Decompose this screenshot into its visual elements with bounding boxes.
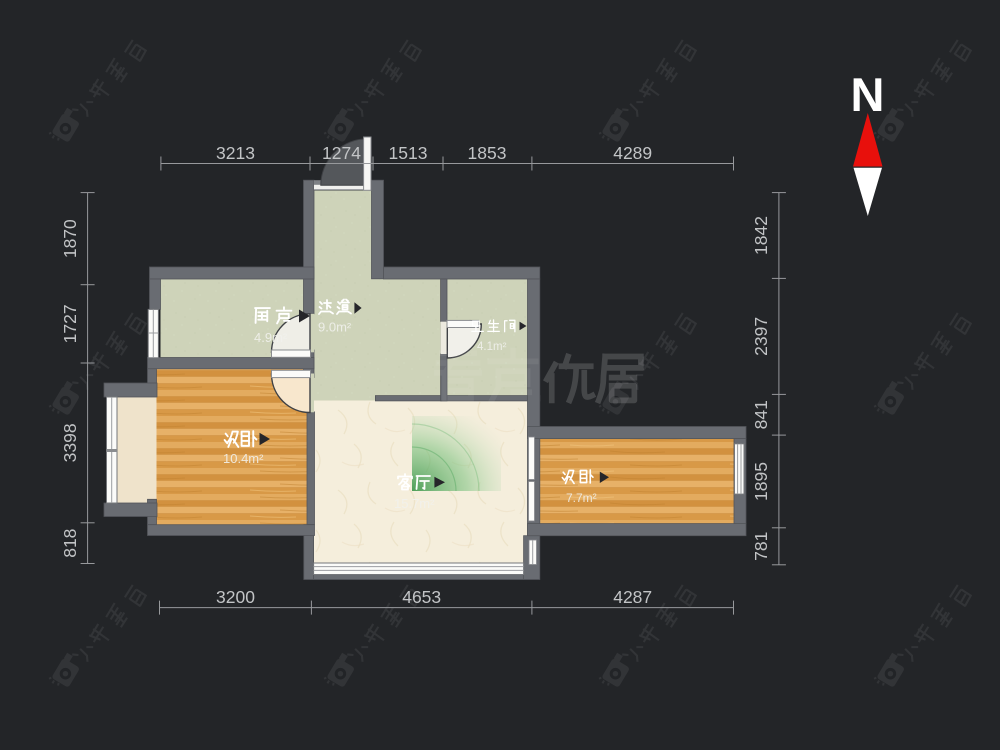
svg-text:1727: 1727 xyxy=(60,304,80,343)
svg-text:841: 841 xyxy=(751,400,771,429)
svg-text:4287: 4287 xyxy=(613,587,652,607)
svg-text:1853: 1853 xyxy=(468,143,507,163)
svg-text:3213: 3213 xyxy=(216,143,255,163)
svg-text:4289: 4289 xyxy=(613,143,652,163)
svg-text:4.9m²: 4.9m² xyxy=(254,330,288,345)
svg-text:3398: 3398 xyxy=(60,423,80,462)
svg-text:15.7m²: 15.7m² xyxy=(394,496,435,511)
svg-text:3200: 3200 xyxy=(216,587,255,607)
svg-text:10.4m²: 10.4m² xyxy=(223,451,264,466)
svg-text:1513: 1513 xyxy=(389,143,428,163)
svg-text:4653: 4653 xyxy=(402,587,441,607)
svg-text:1842: 1842 xyxy=(751,216,771,255)
svg-text:2397: 2397 xyxy=(751,317,771,356)
svg-text:N: N xyxy=(851,68,885,121)
svg-text:781: 781 xyxy=(751,532,771,561)
svg-text:1870: 1870 xyxy=(60,219,80,258)
svg-text:4.1m²: 4.1m² xyxy=(477,341,507,353)
svg-text:818: 818 xyxy=(60,529,80,558)
svg-text:1274: 1274 xyxy=(322,143,361,163)
svg-text:9.0m²: 9.0m² xyxy=(318,320,352,335)
svg-text:7.7m²: 7.7m² xyxy=(566,491,597,505)
svg-text:1895: 1895 xyxy=(751,462,771,501)
